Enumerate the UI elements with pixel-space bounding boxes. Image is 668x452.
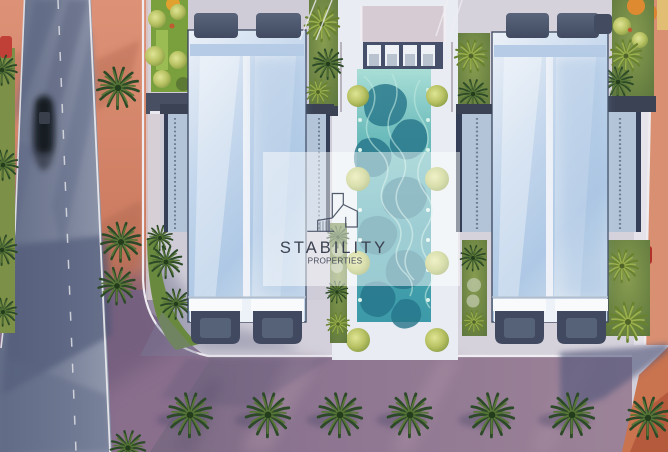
svg-text:PROPERTIES: PROPERTIES bbox=[308, 257, 363, 266]
svg-text:STABILITY: STABILITY bbox=[280, 239, 388, 257]
